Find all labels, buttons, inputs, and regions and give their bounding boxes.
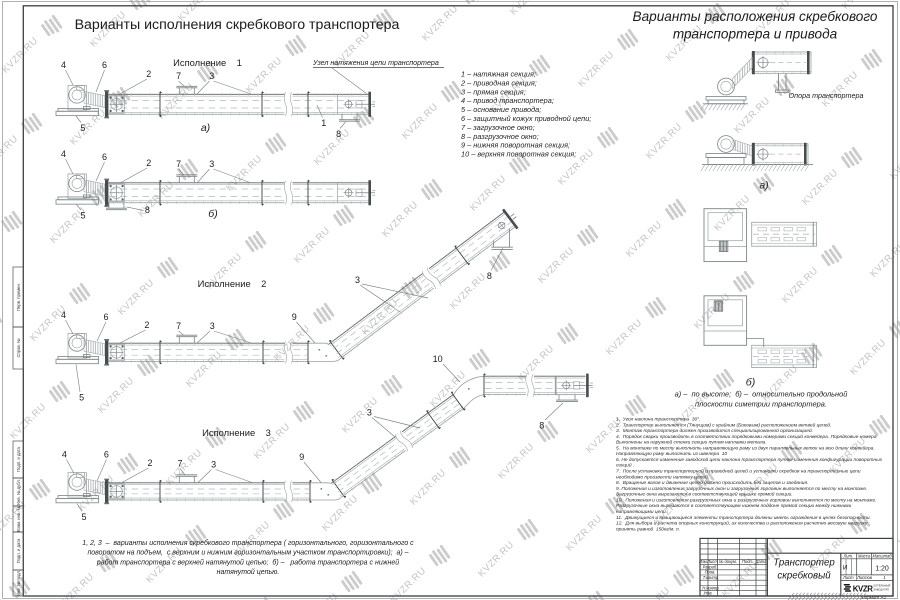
svg-text:4 – привод транспортера;: 4 – привод транспортера; [461,96,554,105]
svg-text:3 – прямая секция;: 3 – прямая секция; [461,87,526,96]
svg-text:Варианты расположения скребков: Варианты расположения скребкового [633,9,878,24]
svg-text:7: 7 [176,159,181,169]
svg-text:5: 5 [79,393,84,403]
svg-text:натянутой цепью.: натянутой цепью. [217,568,280,576]
svg-text:5: 5 [80,123,85,133]
svg-text:б): б) [746,377,755,389]
svg-text:6 – защитный кожух приводной: 6 – защитный кожух приводной цепи; [461,114,591,123]
svg-text:2 – приводная секция;: 2 – приводная секция; [460,78,537,87]
svg-text:1 – натяжная секция;: 1 – натяжная секция; [461,70,536,79]
svg-text:7: 7 [176,321,181,331]
svg-text:направляющими цепи.: направляющими цепи. [616,510,667,515]
svg-text:6: 6 [103,312,108,322]
svg-text:принять равной 150кг/м. п.: принять равной 150кг/м. п. [616,525,680,532]
svg-text:Масштаб: Масштаб [872,554,892,559]
svg-text:Подп. и дата: Подп. и дата [16,446,21,471]
svg-text:секций .: секций . [616,462,634,469]
svg-text:Подп. и дата: Подп. и дата [16,538,21,563]
svg-text:а): а) [201,122,210,134]
svg-text:Формат А1: Формат А1 [861,595,887,600]
svg-text:Исполнение 3: Исполнение 3 [202,427,271,438]
svg-text:б): б) [208,208,217,220]
svg-text:3: 3 [209,71,214,81]
svg-text:12. Для выбора и расчета опор: 12. Для выбора и расчета опорных констру… [616,520,868,527]
svg-text:Подп.: Подп. [742,559,753,564]
svg-text:скребковый: скребковый [777,571,831,582]
svg-text:2: 2 [146,69,151,79]
svg-text:а) – по высоте; б) – относи: а) – по высоте; б) – относительно продол… [675,390,848,399]
svg-text:1:20: 1:20 [875,566,889,573]
svg-text:5: 5 [81,512,86,522]
svg-text:Дата: Дата [755,559,768,564]
svg-text:11. Движущиеся и вращающиеся: 11. Движущиеся и вращающиеся элементы тр… [616,515,871,521]
svg-text:8 – разгрузочное окно;: 8 – разгрузочное окно; [461,132,539,141]
svg-text:Направляющую раму выполнить из: Направляющую раму выполнить из швелера 1… [616,451,727,457]
svg-text:Лит.: Лит. [843,554,854,559]
svg-text:10 – верхняя поворотная секц: 10 – верхняя поворотная секция; [461,150,576,159]
svg-text:4: 4 [61,60,66,70]
svg-text:9 – нижняя поворотная секция: 9 – нижняя поворотная секция; [461,141,570,150]
svg-text:5 – основание привода;: 5 – основание привода; [461,105,541,114]
svg-text:7: 7 [176,71,181,81]
svg-text:Инв. № подл.: Инв. № подл. [16,570,21,596]
svg-text:9: 9 [292,312,297,322]
svg-text:Загрузочные окна вырезаются в: Загрузочные окна вырезаются в соответств… [616,491,793,498]
svg-text:работ транспортера с верхней н: работ транспортера с верхней натянутой ц… [96,558,399,566]
svg-text:Варианты исполнения скребковог: Варианты исполнения скребкового транспор… [75,17,400,33]
svg-text:а): а) [759,180,768,192]
svg-text:Листов: Листов [856,575,873,580]
svg-text:5: 5 [80,211,85,221]
svg-text:3: 3 [211,460,216,470]
svg-text:9. Положения и изготовления за: 9. Положения и изготовления загрузочных … [616,486,867,492]
svg-text:Исполнение 2: Исполнение 2 [198,278,267,289]
svg-text:Выполнены на наружной стенки с: Выполнены на наружной стенки секции путе… [616,439,767,446]
svg-text:Масса: Масса [858,554,871,559]
svg-text:Лист: Лист [842,575,854,580]
svg-text:1, 2, 3 – варианты исполнени: 1, 2, 3 – варианты исполнения скребковог… [82,539,414,547]
svg-text:4. Порядок сварки производить: 4. Порядок сварки производить в соответс… [616,433,877,440]
svg-text:7. После установки транспорте: 7. После установки транспортерной и прив… [616,468,861,475]
svg-text:6: 6 [102,60,107,70]
svg-text:плоскости симетрии транспортер: плоскости симетрии транспортера. [695,400,827,409]
svg-text:10. Положения и изготовления: 10. Положения и изготовления разгрузочны… [616,497,877,503]
svg-text:И: И [843,565,848,572]
svg-text:№ докум.: № докум. [719,559,737,564]
svg-text:5. На монтаже по месту выполн: 5. На монтаже по месту выполнить направл… [616,444,875,451]
svg-text:4: 4 [62,450,67,460]
svg-text:Утв.: Утв. [703,591,712,596]
svg-text:6. Не допускается изменение за: 6. Не допускается изменение заводской це… [616,456,883,463]
svg-text:4: 4 [61,149,66,159]
svg-text:Разгрузочные окна вырезаются в: Разгрузочные окна вырезаются в соответст… [616,502,852,509]
svg-text:2: 2 [147,458,152,468]
svg-text:10: 10 [433,354,443,364]
svg-text:2. Транспортер выполняется (Т: 2. Транспортер выполняется (Тянущим) с к… [615,421,831,428]
svg-text:Исполнение 1: Исполнение 1 [173,57,242,68]
svg-text:1: 1 [883,575,885,580]
svg-text:1. Угол наклона транспортера: 1. Угол наклона транспортера 30°. [616,417,700,423]
svg-text:6: 6 [102,152,107,162]
svg-text:8: 8 [336,129,341,139]
svg-text:Т.контр.: Т.контр. [703,575,720,580]
svg-text:поворотом на подъем, с верхни: поворотом на подъем, с верхним и нижним … [87,549,408,557]
svg-text:7: 7 [177,459,182,469]
svg-text:Справ. №: Справ. № [16,338,21,358]
svg-text:ЗАВОД РЭП: ЗАВОД РЭП [874,587,889,591]
svg-text:8. Вращение валов и движение: 8. Вращение валов и движение цепей должн… [616,479,808,486]
svg-text:Узел натяжения цепи транспорте: Узел натяжения цепи транспортера [312,59,439,67]
svg-text:6: 6 [104,450,109,460]
svg-text:Перв. примен.: Перв. примен. [16,283,21,311]
svg-text:Взам. инв. №: Взам. инв. № [16,506,21,532]
svg-text:8: 8 [487,271,492,281]
svg-text:2: 2 [146,158,151,168]
svg-text:8: 8 [145,205,150,215]
svg-text:КОТЕЛЬНЫЙ: КОТЕЛЬНЫЙ [874,584,891,588]
svg-text:Инв. № дубл.: Инв. № дубл. [16,479,21,505]
svg-text:2: 2 [144,320,149,330]
svg-text:4: 4 [61,310,66,320]
svg-text:3. Монтаж транспортера должен: 3. Монтаж транспортера должен производит… [616,427,813,434]
svg-text:1: 1 [321,118,326,128]
svg-text:3: 3 [355,275,360,285]
svg-text:3: 3 [367,408,372,418]
svg-text:3: 3 [210,321,215,331]
svg-text:необходимо произвести натяжку: необходимо произвести натяжку цепей. [616,473,709,480]
svg-text:транспортера и привода: транспортера и привода [673,27,838,42]
svg-text:KVZR: KVZR [853,584,873,593]
svg-text:7 – загрузочное окно;: 7 – загрузочное окно; [461,123,535,132]
svg-text:8: 8 [539,421,544,431]
svg-text:3: 3 [209,159,214,169]
svg-text:Опора транспортера: Опора транспортера [789,91,864,100]
svg-text:Транспортер: Транспортер [773,558,835,569]
svg-text:9: 9 [299,452,304,462]
